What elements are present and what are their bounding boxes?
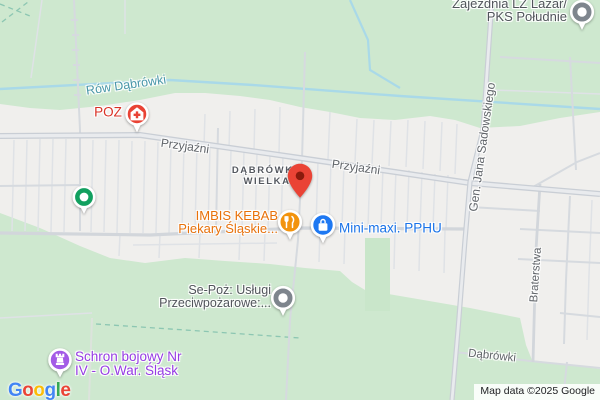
medical-pin-icon[interactable] (122, 101, 152, 144)
poi-label-schron-line1: Schron bojowy Nr (75, 350, 182, 364)
poi-label-schron-line2: IV - O.War. Śląsk (75, 364, 182, 378)
poi-label-imbis-kebab[interactable]: IMBIS KEBAB Piekary Śląskie... (178, 209, 278, 235)
poi-label-sepoz[interactable]: Se-Poż: Usługi Przeciwpożarowe:... (159, 284, 271, 309)
google-logo-letter: o (22, 380, 33, 400)
poi-label-zajezdnia[interactable]: Zajezdnia LZ Lazar/ PKS Południe (452, 0, 567, 23)
poi-label-zajezdnia-line2: PKS Południe (452, 10, 567, 23)
restaurant-pin-icon[interactable] (275, 209, 305, 252)
map-canvas[interactable]: Rów Dąbrówki Przyjaźni Przyjaźni Gen. Ja… (0, 0, 600, 400)
google-logo[interactable]: Google (8, 380, 70, 400)
poi-label-schron[interactable]: Schron bojowy Nr IV - O.War. Śląsk (75, 350, 182, 377)
poi-label-poz[interactable]: POZ (94, 106, 122, 119)
poi-label-sepoz-line1: Se-Poż: Usługi (159, 284, 271, 297)
place-dot-icon-green[interactable] (69, 184, 99, 227)
google-logo-letter: e (60, 380, 70, 400)
poi-dot-icon-zajezdnia[interactable] (567, 0, 597, 42)
poi-label-imbis-line2: Piekary Śląskie... (178, 222, 278, 235)
poi-label-sepoz-line2: Przeciwpożarowe:... (159, 297, 271, 310)
poi-label-minimaxi[interactable]: Mini-maxi. PPHU (339, 222, 442, 235)
google-logo-letter: G (8, 380, 22, 400)
google-logo-letter: o (33, 380, 44, 400)
destination-pin-icon[interactable] (287, 163, 313, 204)
map-attribution: Map data ©2025 Google (474, 384, 600, 400)
shopping-pin-icon[interactable] (308, 212, 338, 255)
poi-dot-icon-sepoz[interactable] (268, 285, 298, 328)
google-logo-letter: g (45, 380, 56, 400)
